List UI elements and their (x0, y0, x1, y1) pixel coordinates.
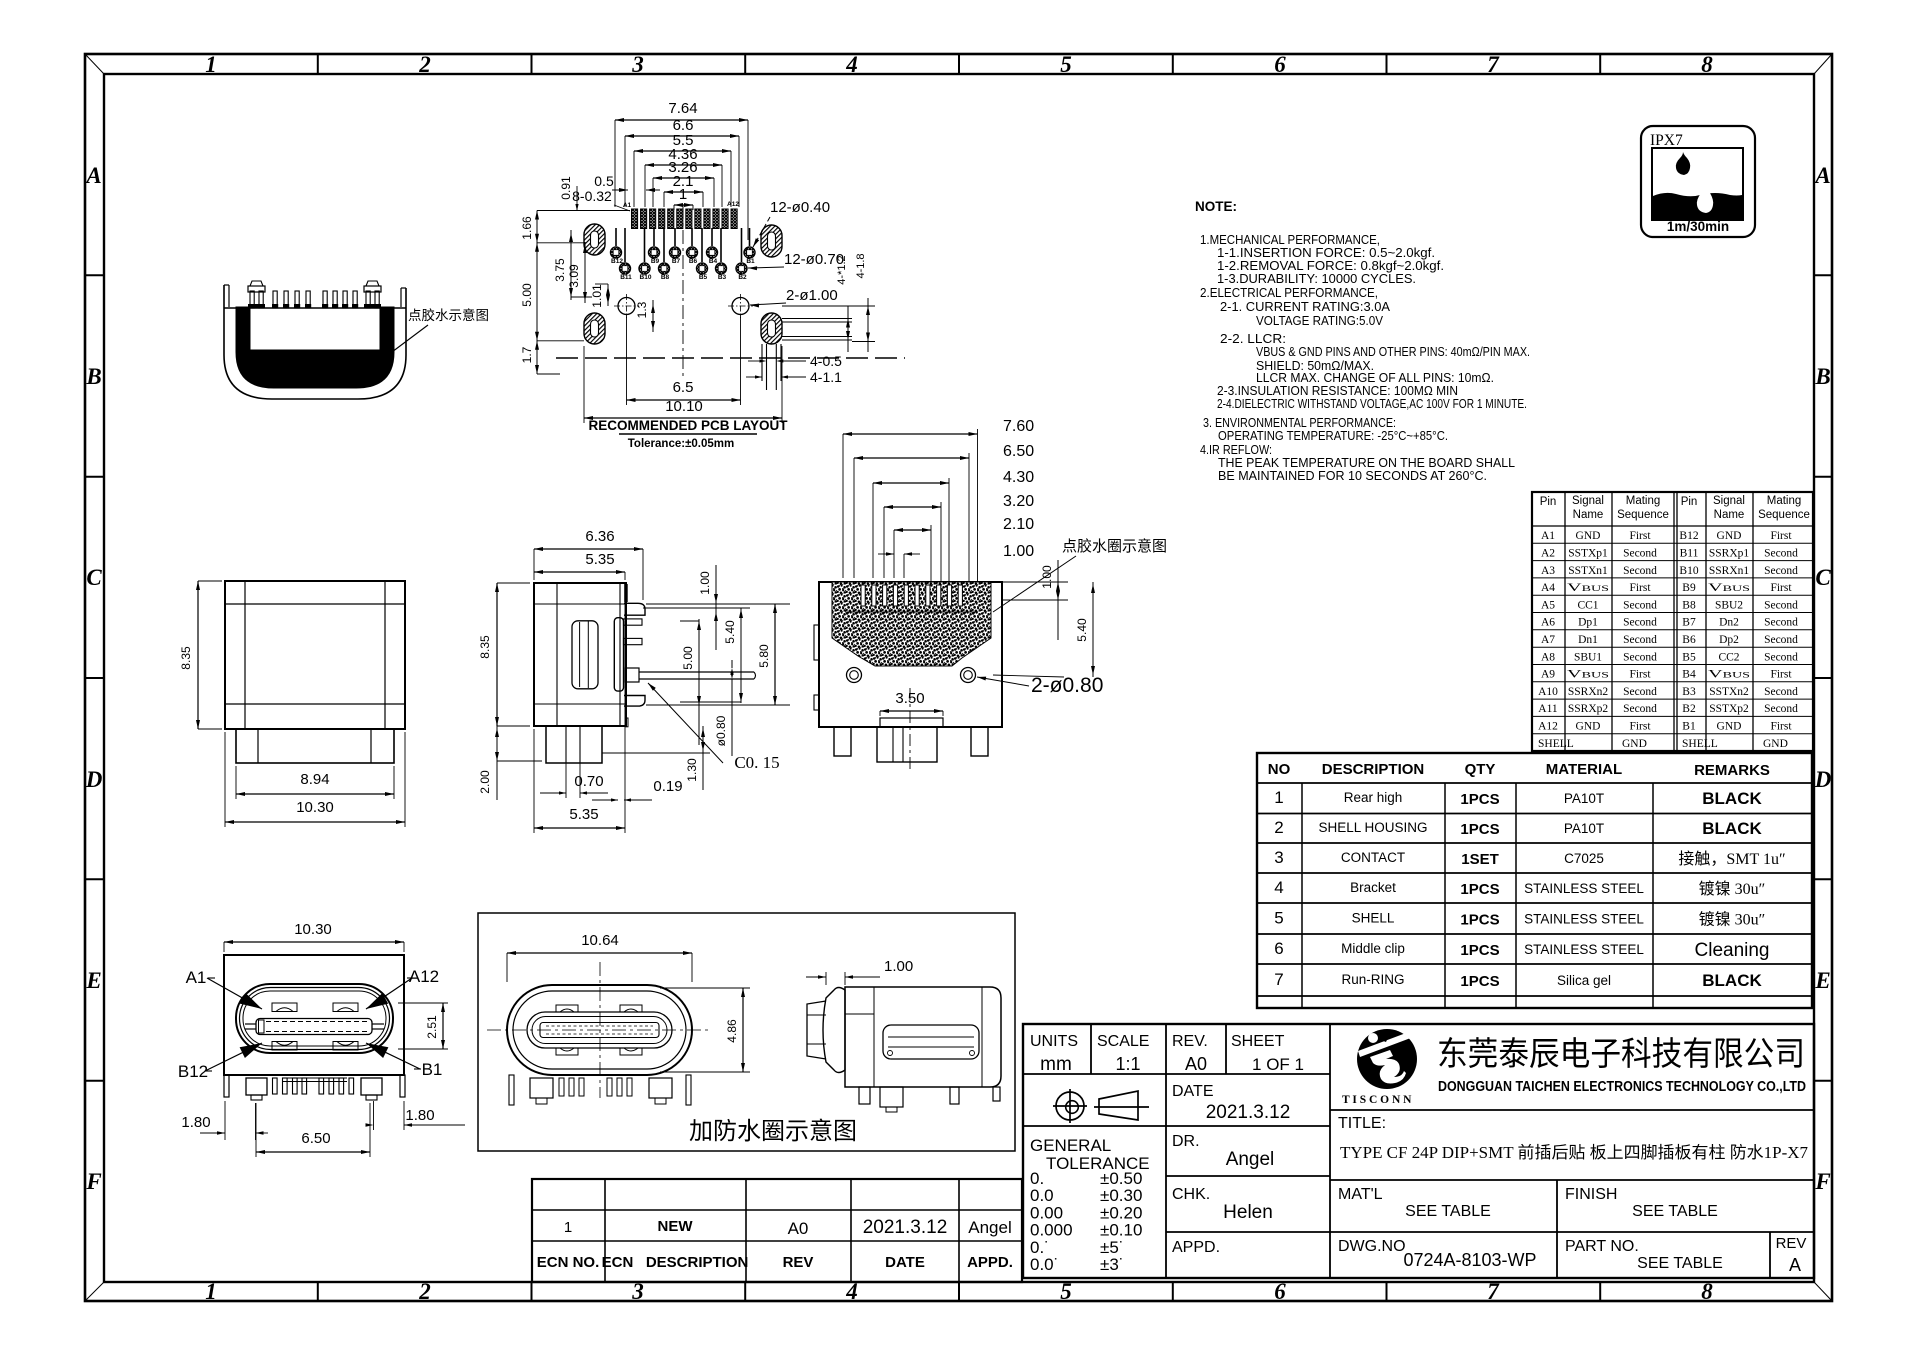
svg-text:A1: A1 (623, 202, 632, 209)
svg-text:1PCS: 1PCS (1460, 942, 1499, 959)
svg-text:A2: A2 (1541, 548, 1555, 560)
svg-text:8.35: 8.35 (179, 646, 193, 670)
svg-text:4: 4 (1274, 878, 1283, 897)
svg-text:Silica gel: Silica gel (1557, 973, 1611, 988)
svg-text:SCALE: SCALE (1097, 1033, 1149, 1050)
svg-text:VBUS: VBUS (1708, 582, 1750, 594)
svg-text:C0. 15: C0. 15 (734, 753, 779, 772)
svg-text:0724A-8103-WP: 0724A-8103-WP (1403, 1250, 1536, 1270)
svg-text:Second: Second (1623, 565, 1657, 577)
svg-text:4.30: 4.30 (1003, 469, 1034, 486)
svg-text:1.80: 1.80 (405, 1107, 434, 1124)
svg-text:B5: B5 (699, 274, 708, 281)
svg-text:Second: Second (1623, 634, 1657, 646)
svg-text:VBUS: VBUS (1708, 669, 1750, 681)
svg-text:B1: B1 (1682, 721, 1696, 733)
svg-text:3.09: 3.09 (567, 264, 581, 288)
svg-text:Second: Second (1764, 548, 1798, 560)
svg-text:RECOMMENDED PCB LAYOUT: RECOMMENDED PCB LAYOUT (588, 418, 788, 433)
svg-text:Angel: Angel (1226, 1149, 1275, 1170)
svg-text:3: 3 (1274, 848, 1283, 867)
svg-text:STAINLESS STEEL: STAINLESS STEEL (1524, 942, 1644, 957)
svg-text:10.30: 10.30 (296, 799, 334, 816)
svg-text:APPD.: APPD. (967, 1254, 1013, 1271)
svg-text:Name: Name (1573, 509, 1604, 521)
svg-text:1.00: 1.00 (698, 571, 712, 595)
svg-text:2: 2 (418, 52, 431, 77)
svg-text:A0: A0 (788, 1219, 809, 1238)
svg-text:5: 5 (1274, 909, 1283, 928)
svg-text:2.10: 2.10 (1003, 516, 1034, 533)
svg-text:B4: B4 (1682, 669, 1696, 681)
svg-text:6: 6 (1274, 939, 1283, 958)
svg-text:VOLTAGE RATING:5.0V: VOLTAGE RATING:5.0V (1256, 313, 1383, 328)
svg-text:Rear high: Rear high (1344, 790, 1403, 805)
svg-text:Sequence: Sequence (1617, 509, 1669, 521)
svg-text:Second: Second (1623, 686, 1657, 698)
svg-text:A3: A3 (1541, 565, 1555, 577)
svg-text:4-*1.2: 4-*1.2 (836, 255, 848, 284)
svg-text:7: 7 (1274, 970, 1283, 989)
svg-text:B: B (85, 364, 101, 389)
svg-text:F: F (85, 1169, 101, 1194)
svg-text:Tolerance:±0.05mm: Tolerance:±0.05mm (628, 438, 734, 450)
svg-text:TITLE:: TITLE: (1338, 1115, 1386, 1132)
svg-text:B1: B1 (422, 1060, 443, 1079)
svg-text:镀镍 30u″: 镀镍 30u″ (1699, 911, 1766, 929)
svg-text:±0.50: ±0.50 (1100, 1169, 1142, 1188)
svg-text:CC1: CC1 (1577, 599, 1598, 611)
svg-text:A5: A5 (1541, 599, 1555, 611)
svg-text:TYPE CF 24P DIP+SMT 前插后贴 板上四脚插: TYPE CF 24P DIP+SMT 前插后贴 板上四脚插板有柱 防水1P-X… (1340, 1143, 1808, 1162)
svg-text:1: 1 (1274, 788, 1283, 807)
svg-text:Angel: Angel (968, 1218, 1011, 1237)
svg-text:4: 4 (845, 52, 858, 77)
svg-text:B10: B10 (640, 274, 652, 281)
svg-text:REMARKS: REMARKS (1694, 762, 1770, 779)
svg-text:2.51: 2.51 (425, 1015, 439, 1039)
svg-text:2021.3.12: 2021.3.12 (863, 1217, 948, 1238)
svg-text:NO: NO (1268, 761, 1291, 778)
svg-text:CC2: CC2 (1718, 651, 1739, 663)
svg-text:A12: A12 (409, 967, 439, 986)
svg-text:2.00: 2.00 (478, 770, 492, 794)
svg-text:8.94: 8.94 (300, 771, 329, 788)
svg-text:1PCS: 1PCS (1460, 791, 1499, 808)
svg-text:T I S C O N N: T I S C O N N (1342, 1094, 1412, 1106)
svg-text:0.: 0. (1030, 1169, 1044, 1188)
svg-text:A12: A12 (1538, 721, 1558, 733)
svg-text:GND: GND (1763, 738, 1788, 750)
svg-text:SEE TABLE: SEE TABLE (1405, 1203, 1491, 1220)
svg-text:7.60: 7.60 (1003, 418, 1034, 435)
svg-text:5: 5 (1060, 52, 1072, 77)
svg-text:A0: A0 (1185, 1054, 1207, 1074)
svg-text:Second: Second (1764, 703, 1798, 715)
svg-text:Dp1: Dp1 (1578, 617, 1598, 629)
svg-text:5.35: 5.35 (585, 551, 614, 568)
svg-text:DATE: DATE (1172, 1083, 1213, 1100)
svg-text:Second: Second (1764, 651, 1798, 663)
svg-text:2: 2 (1274, 818, 1283, 837)
svg-text:1.80: 1.80 (181, 1114, 210, 1131)
svg-text:6.36: 6.36 (585, 528, 614, 545)
svg-text:1:1: 1:1 (1115, 1054, 1140, 1074)
svg-text:5.80: 5.80 (757, 644, 771, 668)
svg-text:C7025: C7025 (1564, 851, 1604, 866)
svg-text:0.00: 0.00 (1030, 1203, 1063, 1222)
svg-text:VBUS: VBUS (1567, 669, 1609, 681)
svg-text:B12: B12 (1679, 530, 1698, 542)
svg-text:ECN NO.: ECN NO. (537, 1254, 600, 1271)
svg-text:E: E (1814, 968, 1830, 993)
svg-text:4-0.5: 4-0.5 (810, 353, 842, 369)
svg-text:First: First (1770, 721, 1792, 733)
svg-text:1PCS: 1PCS (1460, 821, 1499, 838)
svg-text:2-4.DIELECTRIC WITHSTAND VOLTA: 2-4.DIELECTRIC WITHSTAND VOLTAGE,AC 100V… (1217, 396, 1527, 411)
svg-text:First: First (1629, 530, 1651, 542)
svg-text:Run-RING: Run-RING (1341, 972, 1404, 987)
svg-text:0.5: 0.5 (594, 173, 614, 189)
svg-text:Signal: Signal (1572, 495, 1604, 507)
svg-text:Second: Second (1764, 617, 1798, 629)
svg-text:B7: B7 (672, 258, 681, 265)
svg-text:A: A (84, 163, 101, 188)
svg-text:B1: B1 (746, 258, 755, 265)
svg-text:DONGGUAN TAICHEN ELECTRONICS T: DONGGUAN TAICHEN ELECTRONICS TECHNOLOGY … (1438, 1079, 1806, 1095)
svg-text:1: 1 (679, 186, 687, 203)
svg-text:6.50: 6.50 (1003, 443, 1034, 460)
svg-text:B11: B11 (620, 274, 632, 281)
svg-text:0.˙: 0.˙ (1030, 1238, 1050, 1257)
svg-text:VBUS: VBUS (1567, 582, 1609, 594)
svg-text:1SET: 1SET (1461, 851, 1499, 868)
svg-text:1.00: 1.00 (1003, 543, 1034, 560)
svg-text:加防水圈示意图: 加防水圈示意图 (689, 1118, 857, 1145)
svg-text:SHEET: SHEET (1231, 1033, 1285, 1050)
svg-text:10.30: 10.30 (294, 921, 332, 938)
svg-text:A10: A10 (1538, 686, 1558, 698)
svg-text:OPERATING TEMPERATURE: -25°C~+: OPERATING TEMPERATURE: -25°C~+85°C. (1218, 428, 1448, 443)
svg-text:SSTXn2: SSTXn2 (1709, 686, 1749, 698)
svg-text:SHELL: SHELL (1682, 738, 1718, 750)
svg-text:4-1.1: 4-1.1 (810, 369, 842, 385)
svg-text:SSRXp1: SSRXp1 (1709, 548, 1750, 560)
svg-text:NEW: NEW (658, 1218, 694, 1235)
svg-text:Second: Second (1764, 599, 1798, 611)
svg-text:B3: B3 (1682, 686, 1696, 698)
svg-text:1-3.DURABILITY: 10000 CYCLES.: 1-3.DURABILITY: 10000 CYCLES. (1217, 271, 1416, 286)
svg-text:VBUS & GND PINS AND OTHER PINS: VBUS & GND PINS AND OTHER PINS: 40mΩ/PIN… (1256, 344, 1530, 359)
svg-text:6.5: 6.5 (673, 379, 694, 396)
svg-text:SSTXp1: SSTXp1 (1568, 548, 1608, 560)
svg-text:SEE TABLE: SEE TABLE (1637, 1255, 1723, 1272)
svg-text:B8: B8 (661, 274, 670, 281)
svg-text:SBU1: SBU1 (1574, 651, 1602, 663)
svg-text:1PCS: 1PCS (1460, 912, 1499, 929)
svg-text:B10: B10 (1679, 565, 1698, 577)
svg-text:Second: Second (1623, 703, 1657, 715)
svg-text:B12: B12 (178, 1062, 208, 1081)
svg-text:BLACK: BLACK (1702, 819, 1762, 838)
svg-text:4-1.8: 4-1.8 (855, 253, 867, 278)
svg-text:GND: GND (1717, 530, 1742, 542)
svg-text:1.3: 1.3 (635, 301, 649, 318)
svg-text:4.86: 4.86 (725, 1019, 739, 1043)
svg-text:1.66: 1.66 (520, 216, 534, 240)
svg-text:A11: A11 (1538, 703, 1558, 715)
svg-text:Dn2: Dn2 (1719, 617, 1739, 629)
svg-text:First: First (1770, 582, 1792, 594)
svg-text:5.40: 5.40 (723, 620, 737, 644)
svg-text:±3˙: ±3˙ (1100, 1255, 1124, 1274)
svg-text:NOTE:: NOTE: (1195, 199, 1237, 214)
svg-text:1.00: 1.00 (1040, 565, 1054, 589)
svg-text:2021.3.12: 2021.3.12 (1206, 1102, 1291, 1123)
svg-text:A6: A6 (1541, 617, 1555, 629)
svg-text:3.20: 3.20 (1003, 493, 1034, 510)
svg-text:2-ø1.00: 2-ø1.00 (786, 287, 838, 304)
svg-text:C: C (86, 565, 102, 590)
svg-text:A4: A4 (1541, 582, 1555, 594)
svg-text:5.00: 5.00 (520, 283, 534, 307)
svg-text:First: First (1770, 669, 1792, 681)
svg-text:接触，SMT 1u″: 接触，SMT 1u″ (1678, 850, 1785, 868)
svg-text:SHELL: SHELL (1538, 738, 1574, 750)
svg-text:8.35: 8.35 (478, 635, 492, 659)
svg-text:1: 1 (205, 52, 217, 77)
svg-text:ECN DESCRIPTION: ECN DESCRIPTION (602, 1254, 749, 1271)
svg-text:SBU2: SBU2 (1715, 599, 1743, 611)
svg-text:B4: B4 (709, 258, 718, 265)
svg-text:A1: A1 (186, 968, 207, 987)
svg-text:1.30: 1.30 (685, 758, 699, 782)
svg-text:3: 3 (631, 52, 644, 77)
svg-text:APPD.: APPD. (1172, 1239, 1220, 1256)
svg-text:B8: B8 (1682, 599, 1696, 611)
svg-text:SHELL: SHELL (1352, 911, 1395, 926)
svg-text:First: First (1629, 582, 1651, 594)
svg-text:Dn1: Dn1 (1578, 634, 1598, 646)
svg-text:A: A (1813, 163, 1830, 188)
svg-text:6.50: 6.50 (301, 1130, 330, 1147)
svg-text:SEE TABLE: SEE TABLE (1632, 1203, 1718, 1220)
svg-text:Second: Second (1623, 548, 1657, 560)
svg-text:5.00: 5.00 (681, 646, 695, 670)
svg-text:UNITS: UNITS (1030, 1033, 1078, 1050)
svg-text:±0.30: ±0.30 (1100, 1186, 1142, 1205)
svg-text:B7: B7 (1682, 617, 1696, 629)
svg-text:CONTACT: CONTACT (1341, 850, 1405, 865)
svg-text:SSTXn1: SSTXn1 (1568, 565, 1608, 577)
svg-text:First: First (1629, 669, 1651, 681)
svg-text:8: 8 (1701, 52, 1713, 77)
svg-text:12-ø0.40: 12-ø0.40 (770, 199, 830, 216)
svg-text:REV: REV (783, 1254, 814, 1271)
svg-text:BLACK: BLACK (1702, 971, 1762, 990)
svg-text:GENERAL: GENERAL (1030, 1136, 1111, 1155)
svg-text:8: 8 (1701, 1279, 1713, 1304)
svg-text:SSRXn1: SSRXn1 (1709, 565, 1750, 577)
svg-text:Pin: Pin (1540, 496, 1557, 508)
svg-text:BE MAINTAINED FOR 10 SECONDS A: BE MAINTAINED FOR 10 SECONDS AT 260°C. (1218, 468, 1487, 483)
svg-text:Signal: Signal (1713, 495, 1745, 507)
svg-text:A12: A12 (727, 201, 739, 208)
svg-text:Mating: Mating (1767, 495, 1802, 507)
svg-text:1 OF 1: 1 OF 1 (1252, 1055, 1304, 1074)
svg-text:0.70: 0.70 (574, 773, 603, 790)
svg-text:B5: B5 (1682, 651, 1696, 663)
svg-text:镀镍 30u″: 镀镍 30u″ (1699, 880, 1766, 898)
svg-text:PA10T: PA10T (1564, 821, 1604, 836)
svg-text:Second: Second (1764, 686, 1798, 698)
svg-text:7: 7 (1487, 1279, 1500, 1304)
svg-text:CHK.: CHK. (1172, 1186, 1210, 1203)
svg-text:1.01: 1.01 (590, 284, 604, 308)
svg-text:B2: B2 (738, 274, 747, 281)
svg-text:A8: A8 (1541, 651, 1555, 663)
svg-text:3.50: 3.50 (895, 690, 924, 707)
svg-text:±5˙: ±5˙ (1100, 1238, 1124, 1257)
svg-text:1PCS: 1PCS (1460, 881, 1499, 898)
svg-text:Second: Second (1764, 565, 1798, 577)
svg-text:0.0˙: 0.0˙ (1030, 1255, 1059, 1274)
svg-text:Helen: Helen (1223, 1202, 1273, 1223)
svg-text:PART NO.: PART NO. (1565, 1238, 1639, 1255)
svg-text:1m/30min: 1m/30min (1667, 219, 1729, 234)
svg-text:B2: B2 (1682, 703, 1696, 715)
svg-text:Middle clip: Middle clip (1341, 941, 1405, 956)
svg-text:Name: Name (1714, 509, 1745, 521)
svg-text:GND: GND (1717, 721, 1742, 733)
svg-text:DWG.NO: DWG.NO (1338, 1238, 1406, 1255)
svg-text:2.ELECTRICAL PERFORMANCE,: 2.ELECTRICAL PERFORMANCE, (1200, 285, 1378, 300)
svg-text:SHELL HOUSING: SHELL HOUSING (1318, 820, 1427, 835)
svg-text:Pin: Pin (1681, 496, 1698, 508)
svg-text:6: 6 (1274, 1279, 1286, 1304)
svg-text:SSTXp2: SSTXp2 (1709, 703, 1749, 715)
svg-text:Second: Second (1764, 634, 1798, 646)
svg-text:REV: REV (1776, 1235, 1807, 1252)
svg-text:D: D (85, 767, 103, 792)
svg-text:B6: B6 (689, 258, 698, 265)
svg-text:ø0.80: ø0.80 (714, 715, 728, 746)
svg-text:5.35: 5.35 (569, 806, 598, 823)
svg-text:B: B (1814, 364, 1830, 389)
svg-text:C: C (1815, 565, 1831, 590)
svg-text:3.75: 3.75 (553, 258, 567, 282)
svg-text:Second: Second (1623, 651, 1657, 663)
svg-text:1PCS: 1PCS (1460, 973, 1499, 990)
svg-text:B9: B9 (651, 258, 660, 265)
svg-text:A9: A9 (1541, 669, 1555, 681)
svg-text:STAINLESS STEEL: STAINLESS STEEL (1524, 881, 1644, 896)
svg-text:First: First (1770, 530, 1792, 542)
svg-text:Cleaning: Cleaning (1695, 940, 1770, 961)
svg-text:IPX7: IPX7 (1650, 132, 1683, 149)
svg-text:PA10T: PA10T (1564, 791, 1604, 806)
svg-text:1: 1 (564, 1219, 572, 1236)
svg-text:2: 2 (418, 1279, 431, 1304)
svg-text:GND: GND (1576, 721, 1601, 733)
svg-text:D: D (1814, 767, 1832, 792)
svg-text:Bracket: Bracket (1350, 880, 1396, 895)
svg-text:First: First (1629, 721, 1651, 733)
svg-text:A: A (1789, 1255, 1801, 1275)
svg-text:东莞泰辰电子科技有限公司: 东莞泰辰电子科技有限公司 (1437, 1035, 1805, 1072)
svg-text:B9: B9 (1682, 582, 1696, 594)
svg-text:MATERIAL: MATERIAL (1546, 761, 1622, 778)
svg-text:0.19: 0.19 (653, 778, 682, 795)
svg-text:B3: B3 (718, 274, 727, 281)
svg-text:QTY: QTY (1465, 761, 1496, 778)
svg-text:点胶水圈示意图: 点胶水圈示意图 (1062, 537, 1167, 555)
svg-text:2-ø0.80: 2-ø0.80 (1031, 674, 1103, 697)
svg-text:5.40: 5.40 (1075, 618, 1089, 642)
svg-text:MAT'L: MAT'L (1338, 1186, 1383, 1203)
svg-text:0.0: 0.0 (1030, 1186, 1054, 1205)
svg-text:Second: Second (1623, 599, 1657, 611)
svg-text:10.10: 10.10 (665, 398, 703, 415)
svg-text:±0.10: ±0.10 (1100, 1221, 1142, 1240)
svg-text:1: 1 (205, 1279, 217, 1304)
svg-text:FINISH: FINISH (1565, 1186, 1617, 1203)
svg-text:2-1. CURRENT RATING:3.0A: 2-1. CURRENT RATING:3.0A (1220, 299, 1390, 314)
svg-text:REV.: REV. (1172, 1033, 1208, 1050)
svg-text:0.91: 0.91 (559, 176, 573, 200)
svg-text:6: 6 (1274, 52, 1286, 77)
svg-text:8-0.32: 8-0.32 (572, 188, 612, 204)
svg-text:点胶水示意图: 点胶水示意图 (408, 307, 489, 323)
svg-text:1.00: 1.00 (884, 958, 913, 975)
svg-text:DR.: DR. (1172, 1133, 1200, 1150)
svg-text:DESCRIPTION: DESCRIPTION (1322, 761, 1425, 778)
svg-text:Mating: Mating (1626, 495, 1661, 507)
svg-text:1.7: 1.7 (520, 346, 534, 363)
svg-text:GND: GND (1576, 530, 1601, 542)
svg-text:Dp2: Dp2 (1719, 634, 1739, 646)
svg-text:F: F (1814, 1169, 1830, 1194)
svg-text:E: E (85, 968, 101, 993)
svg-text:10.64: 10.64 (581, 932, 619, 949)
svg-text:5: 5 (1060, 1279, 1072, 1304)
svg-text:GND: GND (1622, 738, 1647, 750)
svg-text:SSRXp2: SSRXp2 (1568, 703, 1609, 715)
svg-text:Second: Second (1623, 617, 1657, 629)
svg-text:Sequence: Sequence (1758, 509, 1810, 521)
svg-text:±0.20: ±0.20 (1100, 1203, 1142, 1222)
svg-text:7: 7 (1487, 52, 1500, 77)
svg-text:mm: mm (1040, 1054, 1072, 1075)
svg-text:7.64: 7.64 (668, 100, 697, 117)
svg-text:DATE: DATE (885, 1254, 925, 1271)
svg-text:SSRXn2: SSRXn2 (1568, 686, 1609, 698)
svg-text:A7: A7 (1541, 634, 1555, 646)
svg-text:BLACK: BLACK (1702, 789, 1762, 808)
svg-text:0.000: 0.000 (1030, 1221, 1073, 1240)
svg-text:STAINLESS STEEL: STAINLESS STEEL (1524, 912, 1644, 927)
svg-text:B6: B6 (1682, 634, 1696, 646)
svg-text:B11: B11 (1680, 548, 1699, 560)
svg-text:A1: A1 (1541, 530, 1555, 542)
